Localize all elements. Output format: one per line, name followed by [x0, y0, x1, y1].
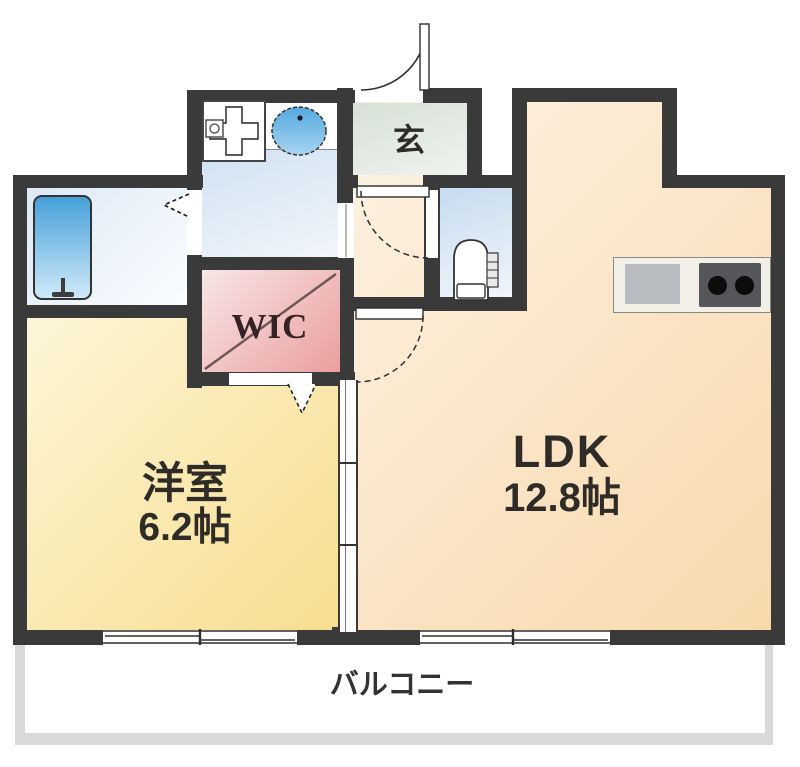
western-room-label: 洋室 6.2帖	[60, 461, 310, 550]
stove-burner	[735, 276, 754, 295]
entrance-door-icon	[361, 24, 429, 90]
wall	[467, 88, 482, 188]
wall	[337, 175, 358, 188]
kitchen-sink	[625, 264, 680, 304]
vanity-counter	[265, 103, 340, 150]
wall	[512, 88, 527, 310]
wall	[340, 297, 527, 311]
wall	[662, 88, 677, 188]
sliding-door-panel-line	[345, 380, 346, 632]
panel-divider	[340, 544, 356, 546]
exterior-notch	[677, 102, 771, 175]
ldk-size: 12.8帖	[442, 477, 682, 520]
window-icon	[420, 630, 610, 645]
wall	[13, 175, 203, 188]
ldk-name: LDK	[442, 428, 682, 477]
bathtub-icon	[33, 195, 92, 300]
stove-burner	[708, 276, 727, 295]
western-room-name: 洋室	[60, 461, 310, 507]
western-room-size: 6.2帖	[60, 507, 310, 549]
wic-label: WIC	[205, 308, 335, 346]
wall	[662, 175, 785, 188]
wall	[13, 175, 27, 645]
wall	[187, 90, 202, 190]
wall	[187, 257, 354, 270]
wall	[13, 305, 202, 318]
toilet-doorway	[426, 190, 438, 258]
balcony-label-text: バルコニー	[330, 669, 474, 701]
wall	[771, 175, 785, 645]
wall	[340, 258, 354, 382]
ldk-label: LDK 12.8帖	[442, 428, 682, 520]
floorplan: 玄 WIC 洋室 6.2帖 LDK 12.8帖 バルコニー	[0, 0, 800, 767]
wic-label-text: WIC	[232, 307, 309, 346]
wall	[187, 255, 202, 388]
window-icon	[103, 630, 297, 645]
wall	[187, 90, 355, 103]
sliding-door-icon	[338, 380, 358, 632]
wic-doorway	[229, 373, 312, 385]
genkan-label: 玄	[379, 123, 439, 158]
toilet-floor	[440, 188, 512, 300]
balcony-label: バルコニー	[277, 670, 527, 701]
wall	[512, 88, 677, 102]
panel-divider	[340, 462, 356, 464]
washroom-doorway	[338, 203, 354, 258]
genkan-label-text: 玄	[393, 122, 425, 158]
